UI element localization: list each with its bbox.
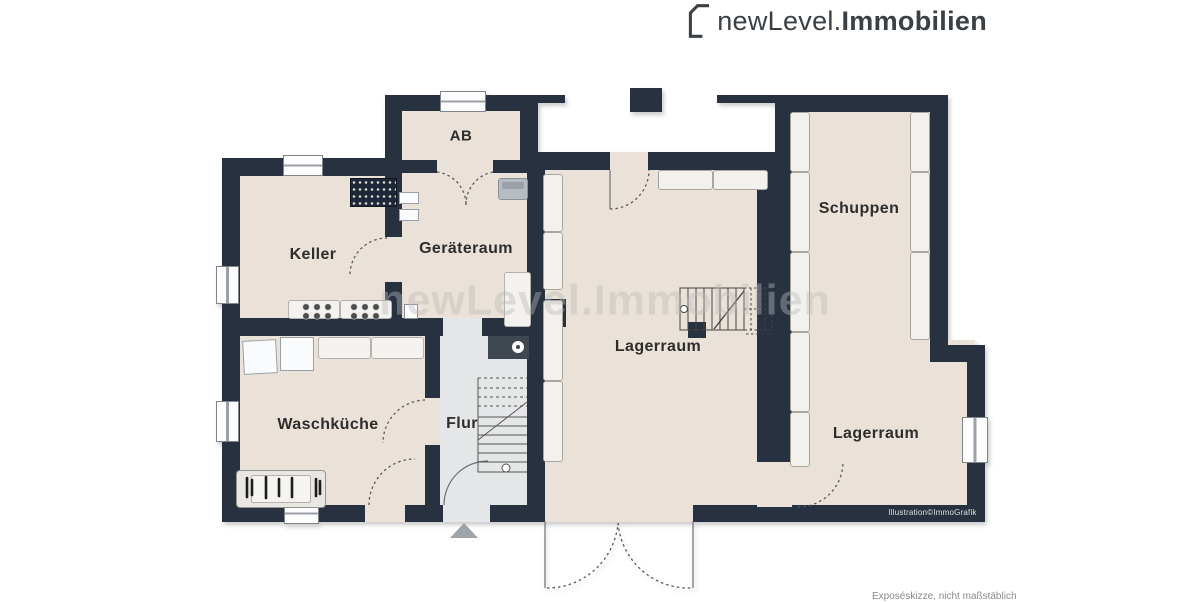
house-bracket-icon bbox=[688, 3, 711, 39]
entrance-arrow-icon bbox=[450, 523, 478, 538]
room-label-geraeteraum: Geräteraum bbox=[419, 240, 513, 258]
brand-logo-prefix: newLevel. bbox=[717, 6, 841, 36]
annotation-layer: AB Keller Geräteraum Waschküche Flur Lag… bbox=[0, 0, 1200, 600]
room-label-schuppen: Schuppen bbox=[819, 200, 900, 218]
room-label-waschkueche: Waschküche bbox=[277, 416, 378, 434]
illustration-credit: Illustration©ImmoGrafik bbox=[880, 508, 985, 517]
brand-logo: newLevel.Immobilien bbox=[688, 3, 987, 39]
room-label-lagerraum-rechts: Lagerraum bbox=[833, 425, 919, 443]
room-label-lagerraum-mitte: Lagerraum bbox=[615, 338, 701, 356]
brand-logo-text: newLevel.Immobilien bbox=[717, 6, 987, 37]
watermark: newLevel.Immobilien bbox=[379, 277, 831, 326]
room-label-keller: Keller bbox=[290, 246, 337, 264]
room-label-flur: Flur bbox=[446, 415, 478, 433]
disclaimer-text: Exposéskizze, nicht maßstäblich bbox=[872, 591, 1017, 602]
room-label-ab: AB bbox=[450, 128, 472, 145]
floorplan-canvas: AB Keller Geräteraum Waschküche Flur Lag… bbox=[0, 0, 1200, 600]
brand-logo-suffix: Immobilien bbox=[841, 6, 987, 36]
